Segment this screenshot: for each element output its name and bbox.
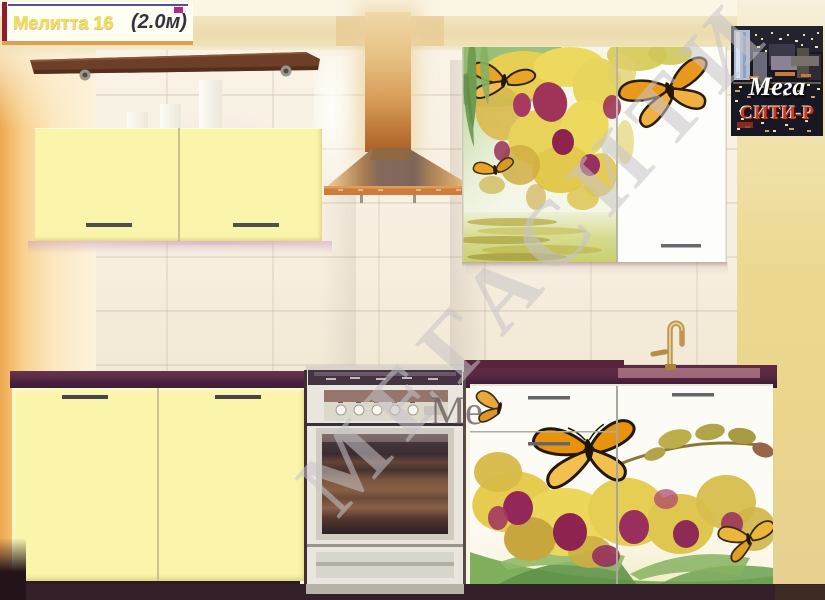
- svg-text:МЕГАСИТИ: МЕГАСИТИ: [277, 0, 793, 533]
- svg-text:Ме: Ме: [430, 388, 483, 433]
